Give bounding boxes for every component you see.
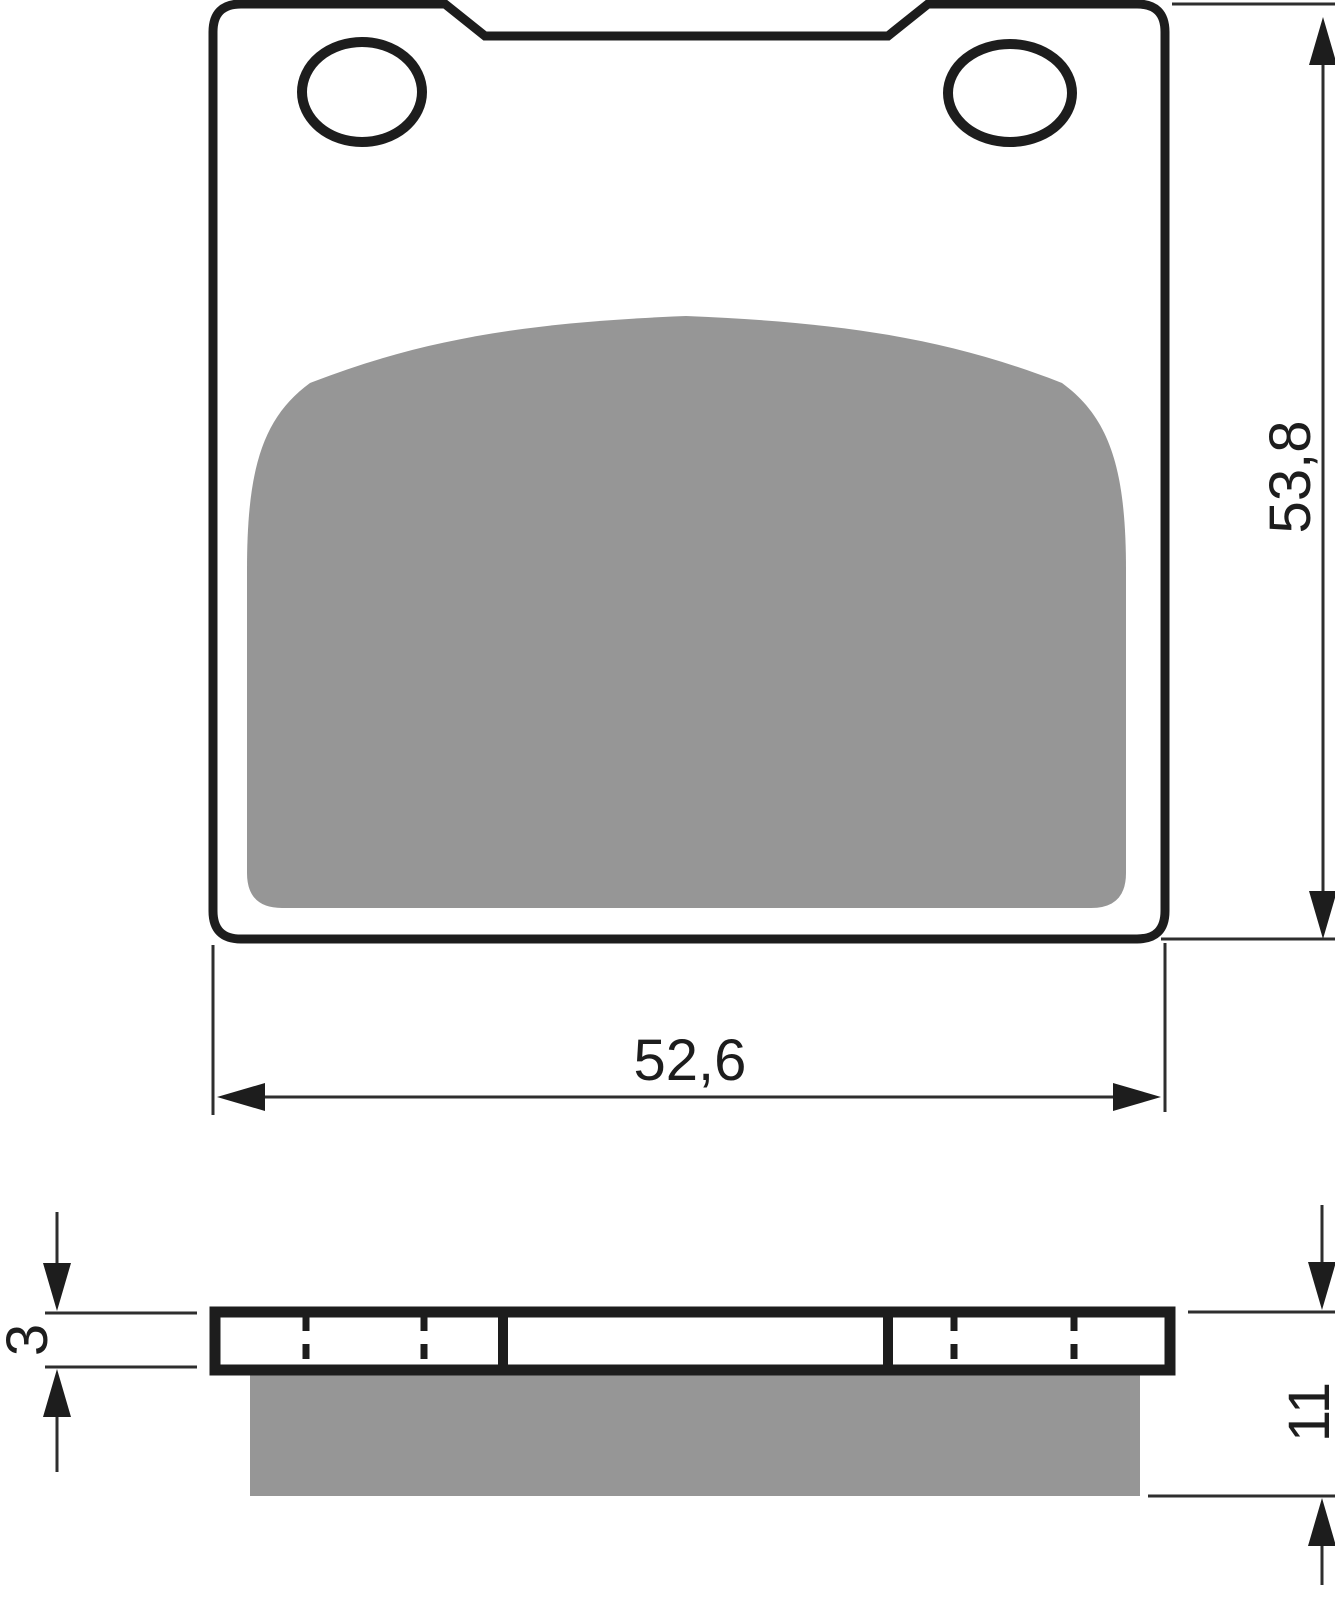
- width-arrow-right: [1113, 1083, 1161, 1111]
- friction-pad-side-view: [250, 1371, 1140, 1496]
- height-dimension: 53,8: [1161, 4, 1335, 939]
- height-arrow-top: [1309, 17, 1335, 65]
- pad-thickness-label: 11: [1277, 1382, 1335, 1442]
- plate-thickness-label: 3: [0, 1324, 60, 1356]
- pad-thickness-arrow-down: [1308, 1262, 1335, 1310]
- thickness-arrow-down: [43, 1263, 71, 1311]
- width-arrow-left: [217, 1083, 265, 1111]
- pad-thickness-dimension: 11: [1148, 1205, 1335, 1585]
- side-view: [215, 1312, 1170, 1496]
- width-dimension-label: 52,6: [634, 1028, 747, 1093]
- mounting-hole-right: [948, 44, 1072, 142]
- friction-pad-top-view: [247, 316, 1126, 908]
- brake-pad-drawing: 52,6 53,8: [0, 0, 1335, 1600]
- technical-drawing-canvas: 52,6 53,8: [0, 0, 1335, 1600]
- top-view: [213, 4, 1165, 939]
- plate-thickness-dimension: 3: [0, 1212, 197, 1472]
- backing-plate-side-view: [215, 1312, 1170, 1370]
- width-dimension: 52,6: [213, 943, 1165, 1115]
- height-arrow-bottom: [1309, 891, 1335, 939]
- mounting-hole-left: [302, 42, 422, 142]
- height-dimension-label: 53,8: [1258, 421, 1323, 534]
- pad-thickness-arrow-up: [1308, 1498, 1335, 1546]
- thickness-arrow-up: [43, 1369, 71, 1417]
